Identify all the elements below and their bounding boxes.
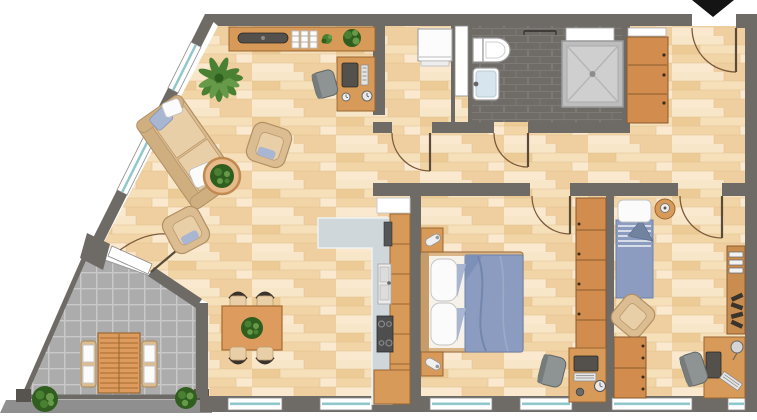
window [520, 398, 572, 410]
garden-chair [81, 341, 96, 387]
wall-hall-bottom-b [570, 183, 678, 196]
fridge-icon [384, 222, 392, 246]
white-shelf [566, 28, 614, 41]
desk-lamp-icon [731, 341, 743, 353]
white-shelf [628, 28, 666, 36]
keyboard-icon [574, 373, 596, 381]
window [228, 398, 282, 410]
window [612, 398, 692, 410]
utility-room [418, 29, 452, 66]
wall-bedroom1-bedroom2 [606, 196, 614, 396]
potted-plant-icon [343, 29, 361, 47]
wall-bath-bottom-a [373, 122, 392, 133]
coffee-table-with-plant [204, 158, 240, 194]
kitchen-sink-icon [378, 264, 391, 304]
pillow-icon [618, 200, 651, 222]
sideboard-with-tv [229, 27, 375, 51]
wall-top [205, 14, 692, 26]
round-bedside-table-with-lamp [655, 199, 675, 219]
floor-plan-canvas [0, 0, 757, 420]
wall-kitchen-bedroom1 [410, 196, 421, 396]
window [430, 398, 492, 410]
dining-chair [230, 347, 246, 363]
wall-hall-bottom-a [373, 183, 530, 196]
kitchen-niche [377, 198, 410, 213]
monitor-icon [706, 352, 721, 378]
wardrobe-cabinet [627, 37, 668, 123]
cd-boxes-icon [292, 31, 317, 48]
garden-chair [142, 341, 157, 387]
wall-bath-bottom-c [528, 122, 630, 133]
window [728, 398, 745, 410]
washbasin-icon [473, 68, 499, 100]
dining-chair [257, 347, 273, 363]
table-plant-icon [241, 317, 263, 339]
double-bed [421, 252, 523, 352]
chest-of-drawers [614, 337, 646, 398]
pillow-icon [431, 303, 457, 345]
wall-utility-niche-right [468, 26, 472, 122]
utility-white-niche [455, 26, 468, 96]
single-bed [616, 200, 653, 298]
garden-table [98, 333, 140, 393]
wardrobe [576, 198, 606, 348]
entrance-arrow-icon [692, 0, 734, 17]
window [320, 398, 372, 410]
entrance-hall [627, 28, 668, 123]
floor-plan-drawing [0, 0, 757, 420]
wall-bath-bottom-b [432, 122, 494, 133]
speaker-icon [576, 388, 584, 396]
pillow-icon [431, 259, 457, 301]
nightstand-with-lamp [421, 228, 443, 252]
monitor-icon [574, 356, 598, 371]
bush-icon [32, 386, 58, 412]
terrace-post [16, 389, 31, 402]
monitor-icon [342, 63, 358, 87]
wall-hall-bottom-c [722, 183, 745, 196]
washing-machine-icon [418, 29, 452, 66]
bush-icon [175, 387, 197, 409]
kitchen-corner-unit [374, 370, 410, 404]
wall-right [745, 14, 757, 408]
nightstand-with-lamp [421, 352, 443, 376]
toilet-icon [473, 38, 510, 62]
wall-terrace-right [196, 303, 208, 398]
shower-icon [562, 41, 623, 107]
bookshelf [727, 246, 745, 334]
hob-icon [377, 316, 393, 352]
